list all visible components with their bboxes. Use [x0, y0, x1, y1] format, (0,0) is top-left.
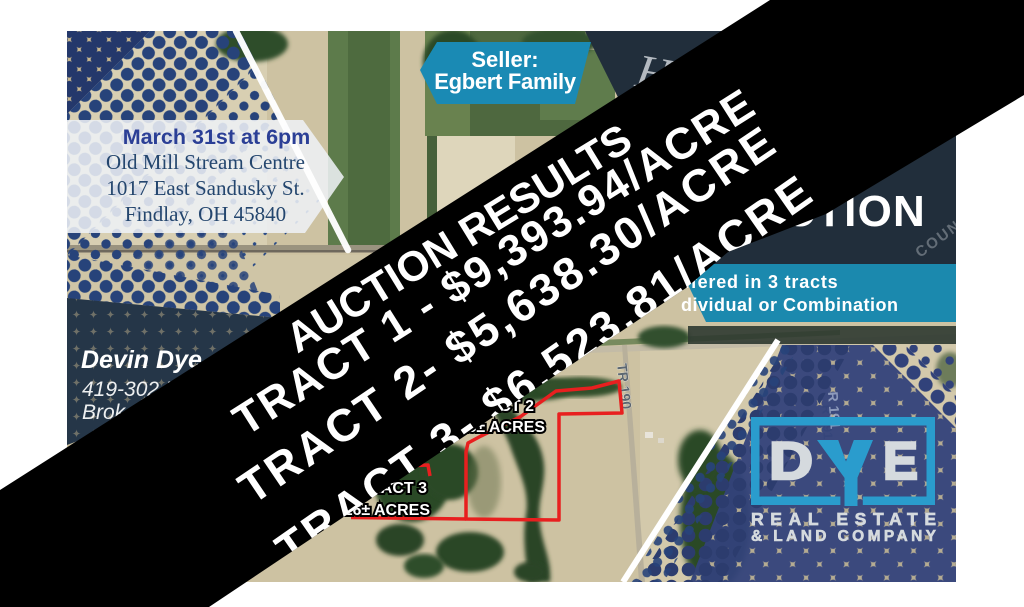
svg-text:E: E [883, 432, 918, 491]
svg-text:dividual or Combination: dividual or Combination [681, 295, 899, 315]
svg-text:Egbert Family: Egbert Family [434, 69, 577, 94]
svg-text:REAL ESTATE: REAL ESTATE [751, 509, 936, 529]
svg-text:Devin Dye: Devin Dye [81, 346, 202, 374]
svg-text:D: D [769, 432, 813, 491]
svg-text:ffered in 3 tracts: ffered in 3 tracts [684, 272, 838, 292]
